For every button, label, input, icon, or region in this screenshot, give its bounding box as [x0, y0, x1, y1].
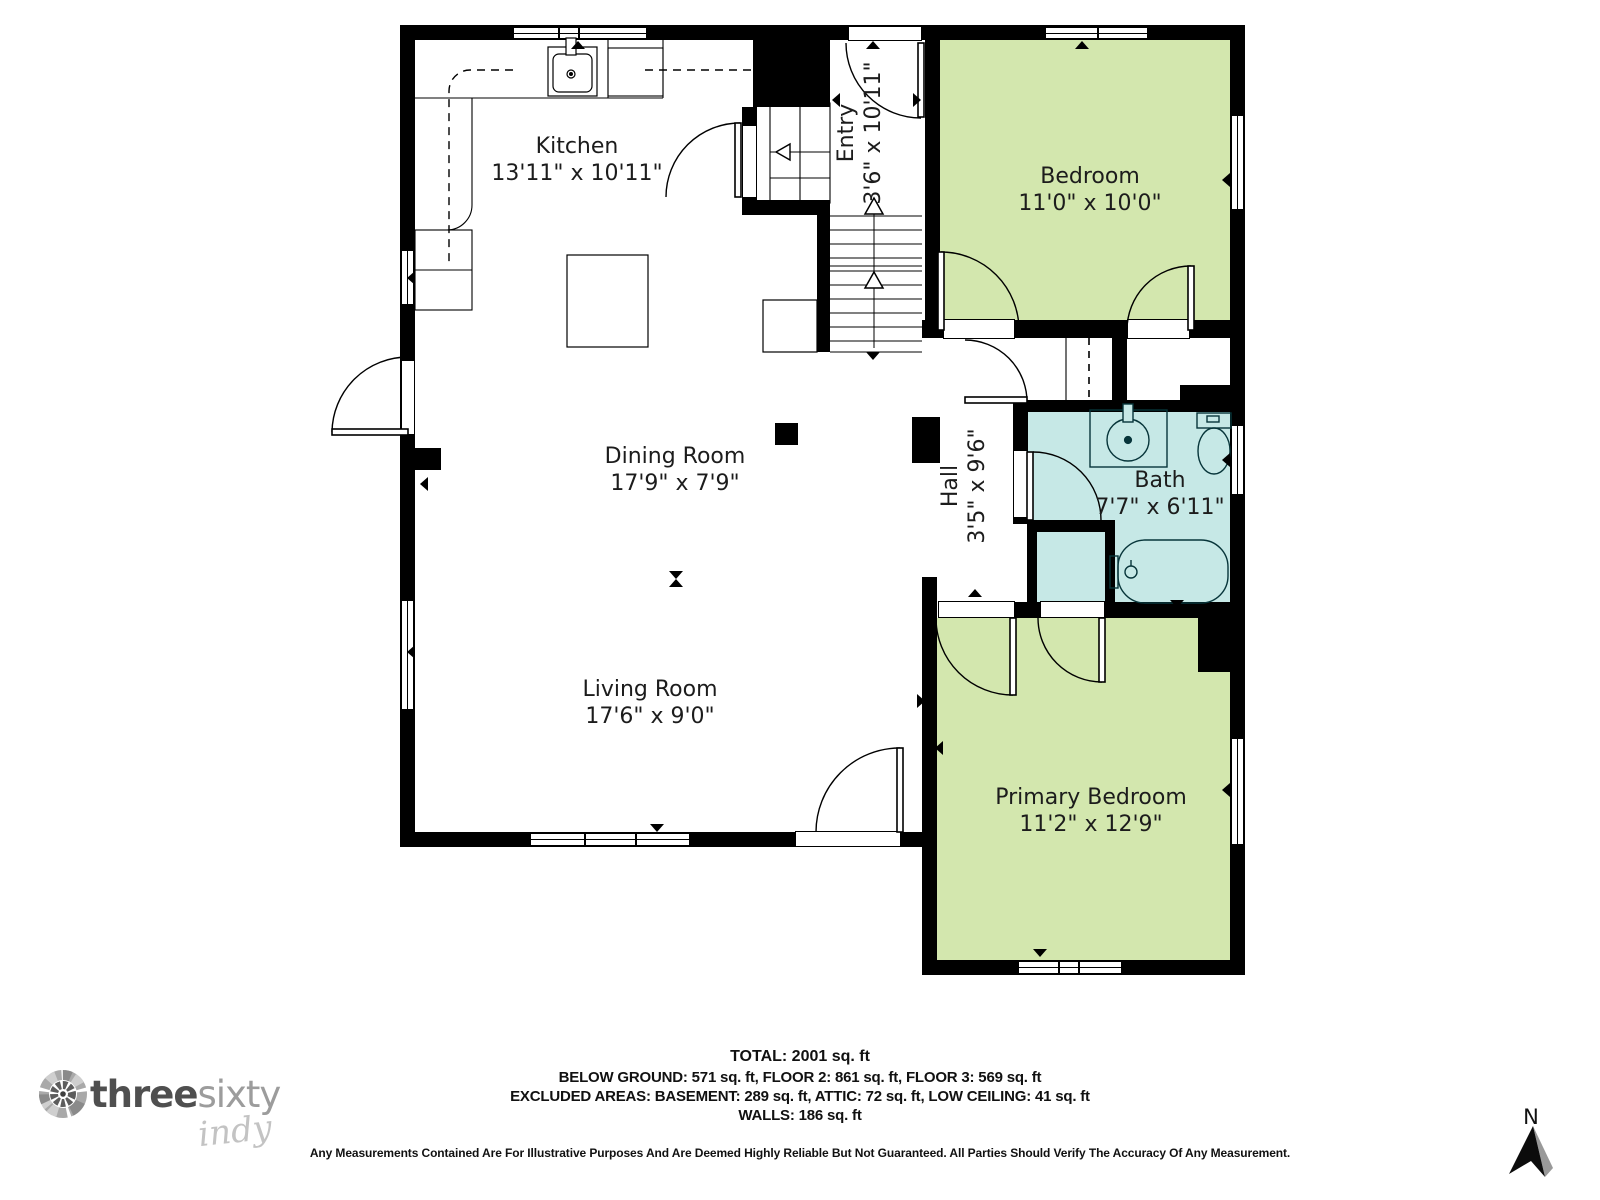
window — [1231, 115, 1244, 210]
room-name: Kitchen — [491, 134, 662, 161]
room-dims: 17'6" x 9'0" — [582, 704, 717, 731]
main-stairs — [830, 198, 922, 352]
window — [401, 600, 414, 710]
door-opening-side — [401, 360, 415, 435]
walls-area: WALLS: 186 sq. ft — [0, 1107, 1600, 1124]
room-label-kitchen: Kitchen 13'11" x 10'11" — [491, 134, 662, 188]
room-dims: 11'2" x 12'9" — [995, 812, 1187, 839]
wall — [1112, 338, 1127, 412]
disclaimer: Any Measurements Contained Are For Illus… — [0, 1146, 1600, 1160]
understair-cabinet — [763, 300, 817, 352]
wall — [757, 200, 830, 215]
room-name: Entry — [834, 61, 861, 204]
room-name: Living Room — [582, 677, 717, 704]
room-label-dining: Dining Room 17'9" x 7'9" — [605, 444, 746, 498]
room-dims: 3'5" x 9'6" — [965, 428, 992, 543]
room-label-bath: Bath 7'7" x 6'11" — [1095, 468, 1224, 522]
door-opening-front — [848, 26, 922, 41]
room-label-living: Living Room 17'6" x 9'0" — [582, 677, 717, 731]
room-label-bedroom: Bedroom 11'0" x 10'0" — [1018, 164, 1161, 218]
wall — [1105, 602, 1245, 618]
wall — [1027, 532, 1037, 608]
pillar — [775, 423, 798, 445]
window — [1231, 425, 1244, 495]
basement-stairs — [770, 103, 830, 203]
room-name: Bath — [1095, 468, 1224, 495]
room-name: Dining Room — [605, 444, 746, 471]
room-dims: 11'0" x 10'0" — [1018, 191, 1161, 218]
excluded-areas: EXCLUDED AREAS: BASEMENT: 289 sq. ft, AT… — [0, 1088, 1600, 1105]
room-dims: 3'6" x 10'11" — [861, 61, 888, 204]
wall-stub — [415, 448, 441, 470]
wall — [1013, 400, 1245, 412]
floor-plan: N Kitchen 13'11" x 10'11" Entry 3'6" x 1… — [0, 0, 1600, 1200]
door-opening-primary — [938, 601, 1015, 618]
wall — [925, 28, 940, 330]
room-name: Bedroom — [1018, 164, 1161, 191]
kitchen-island — [567, 255, 648, 347]
window — [1045, 27, 1148, 39]
window — [513, 27, 647, 39]
window — [1231, 738, 1244, 845]
window — [401, 250, 414, 305]
total-area: TOTAL: 2001 sq. ft — [0, 1048, 1600, 1066]
wall — [922, 577, 937, 975]
window — [530, 833, 690, 846]
room-dims: 7'7" x 6'11" — [1095, 495, 1224, 522]
floors-areas: BELOW GROUND: 571 sq. ft, FLOOR 2: 861 s… — [0, 1069, 1600, 1086]
wall — [817, 215, 830, 352]
door-opening-bath — [1013, 450, 1028, 518]
kitchen-sink — [548, 38, 597, 96]
room-name: Hall — [938, 428, 965, 543]
wall — [1180, 385, 1230, 400]
area-summary: TOTAL: 2001 sq. ft BELOW GROUND: 571 sq.… — [0, 1048, 1600, 1160]
wall — [1015, 602, 1040, 618]
room-name: Primary Bedroom — [995, 785, 1187, 812]
room-label-hall: Hall 3'5" x 9'6" — [938, 428, 992, 543]
wall — [400, 25, 415, 847]
chimney-mass — [753, 28, 830, 107]
room-dims: 17'9" x 7'9" — [605, 471, 746, 498]
door-opening-bedroom — [943, 319, 1015, 339]
wall — [1198, 618, 1230, 672]
pillar — [912, 417, 940, 463]
plan-graphics: N — [0, 0, 1600, 1200]
room-label-entry: Entry 3'6" x 10'11" — [834, 61, 888, 204]
room-dims: 13'11" x 10'11" — [491, 161, 662, 188]
door-opening-kitchen-entry — [742, 125, 757, 198]
door-opening-primary-closet — [1040, 601, 1105, 618]
window — [1018, 961, 1122, 974]
closet-rod — [1066, 338, 1089, 400]
room-label-primary: Primary Bedroom 11'2" x 12'9" — [995, 785, 1187, 839]
door-opening-bedroom-closet — [1127, 319, 1190, 339]
door-opening-back — [795, 831, 901, 847]
wall — [1105, 532, 1115, 602]
